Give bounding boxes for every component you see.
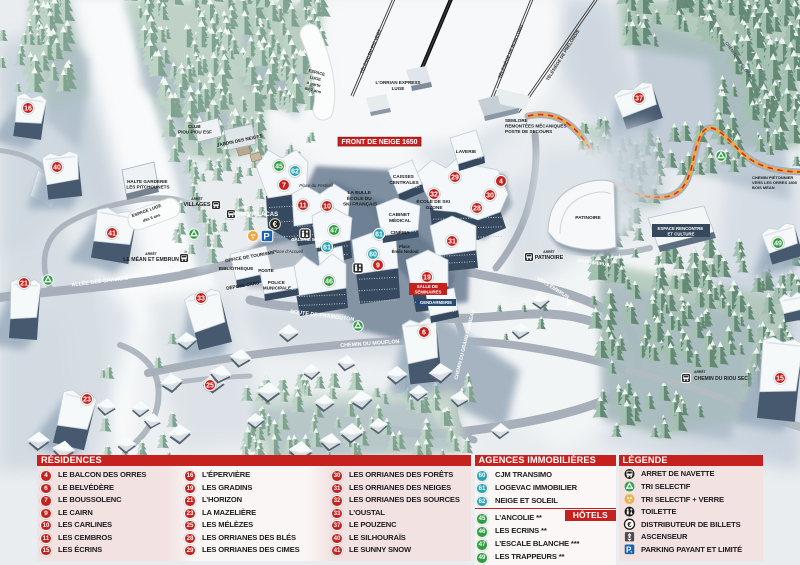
svg-text:P.: P. [626, 545, 633, 554]
